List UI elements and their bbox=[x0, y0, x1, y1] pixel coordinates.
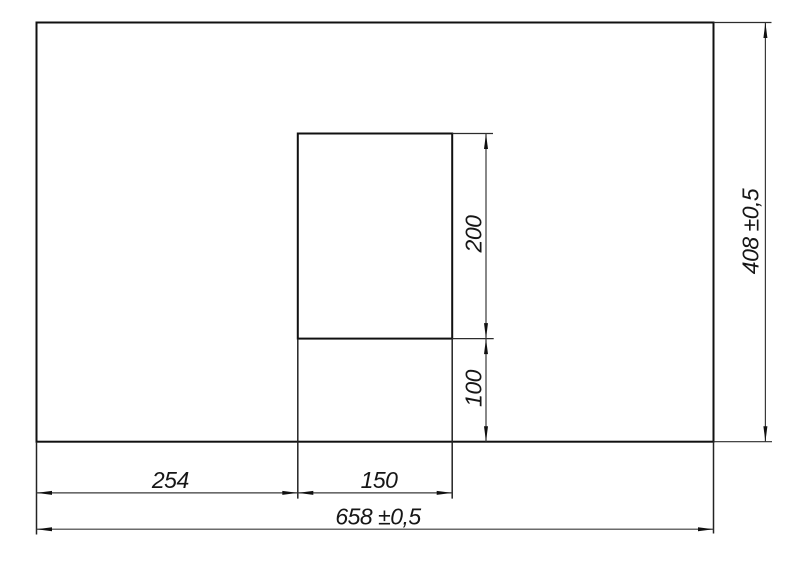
svg-text:408 ±0,5: 408 ±0,5 bbox=[738, 188, 764, 274]
svg-text:100: 100 bbox=[461, 369, 487, 407]
svg-text:658 ±0,5: 658 ±0,5 bbox=[335, 503, 421, 529]
svg-text:150: 150 bbox=[361, 467, 399, 493]
svg-text:254: 254 bbox=[151, 467, 189, 493]
svg-text:200: 200 bbox=[461, 215, 487, 254]
